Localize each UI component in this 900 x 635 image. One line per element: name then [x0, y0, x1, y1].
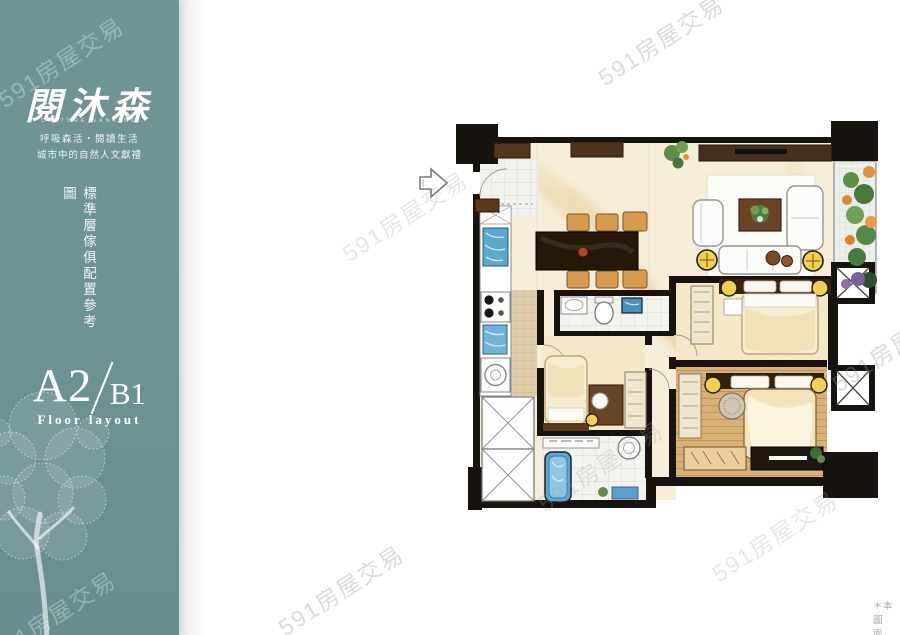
- wardrobe: [691, 286, 713, 344]
- floorplan-canvas: N: [179, 0, 900, 635]
- disclaimer-text: ＊本圖面，外觀牆面造型及材質依實際施工為主: [873, 598, 900, 635]
- plant: [598, 487, 608, 497]
- dresser: [684, 447, 746, 470]
- sidebar: 閱沐森 CULTURE NANKING 呼吸森活‧閱讀生活 城市中的自然人文獻禮…: [0, 0, 179, 635]
- tv-screen: [769, 456, 807, 460]
- bedside-lamp: [811, 377, 827, 393]
- tree-illustration: [0, 388, 135, 635]
- master-bedroom: [679, 373, 827, 470]
- brand-tagline-2: 城市中的自然人文獻禮: [0, 147, 179, 161]
- shower-glass: [622, 298, 642, 313]
- toilet: [595, 302, 613, 324]
- kitchen: [475, 199, 511, 396]
- nightstand: [724, 299, 742, 315]
- bedroom-a: [691, 279, 831, 354]
- utility-shaft: [482, 397, 534, 501]
- bedside-lamp: [812, 280, 828, 296]
- floorplan-page: 閱沐森 CULTURE NANKING 呼吸森活‧閱讀生活 城市中的自然人文獻禮…: [0, 0, 900, 635]
- stove: [481, 292, 510, 322]
- pouf: [719, 393, 745, 419]
- stool: [592, 393, 608, 409]
- vertical-caption: 標準層傢俱配置參考圖: [58, 186, 98, 336]
- wash-basin: [618, 437, 640, 459]
- tv-screen: [735, 149, 787, 154]
- entry-cabinet: [475, 199, 499, 212]
- bedside-lamp: [721, 280, 737, 296]
- floorplan-drawing: [412, 103, 882, 515]
- vanity-counter: [543, 438, 599, 448]
- desk-lamp: [586, 414, 598, 426]
- teapot: [578, 247, 588, 257]
- headboard: [543, 423, 589, 431]
- armchair: [693, 200, 723, 246]
- bath-mat: [612, 487, 638, 499]
- kitchen-window: [483, 325, 507, 354]
- brand-tagline-1: 呼吸森活‧閱讀生活: [0, 131, 179, 145]
- brand-subtitle: CULTURE NANKING: [0, 118, 179, 124]
- bedside-lamp: [705, 377, 721, 393]
